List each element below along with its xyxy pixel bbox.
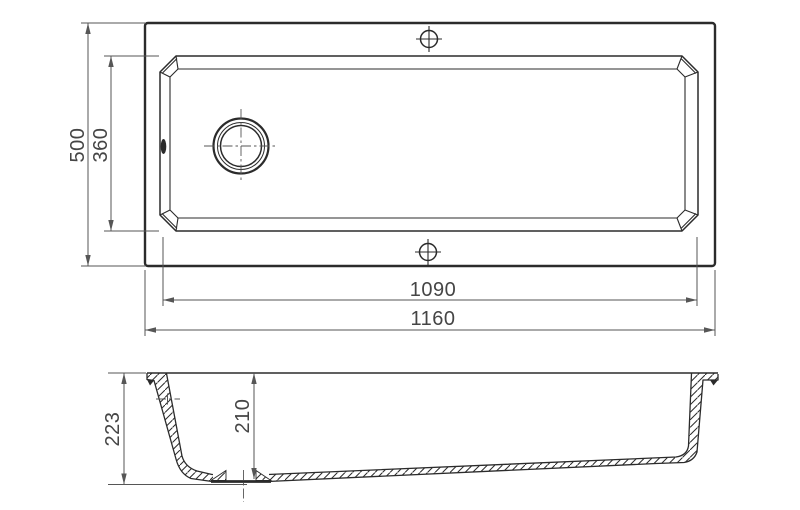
rim-slot: [161, 139, 167, 154]
sink-dimension-drawing: 500 360 1090 1160: [0, 0, 800, 510]
dim-bowl-width: 1090: [163, 237, 697, 306]
dim-360-arrow-bottom: [108, 220, 113, 231]
dim-1160-arrow-left: [145, 327, 156, 332]
dim-1160-label: 1160: [410, 308, 455, 330]
bowl-rim-outline: [160, 56, 698, 231]
dim-223-arrow-bottom: [121, 474, 126, 485]
dim-223-label: 223: [102, 412, 124, 447]
dim-360-arrow-top: [108, 56, 113, 67]
outer-outline: [145, 23, 715, 266]
dim-210-label: 210: [232, 399, 254, 434]
dim-360-label: 360: [90, 128, 112, 163]
dim-223-arrow-top: [121, 373, 126, 384]
tap-hole-bottom: [415, 239, 441, 265]
dim-bowl-depth: 360: [90, 56, 159, 231]
dim-500-arrow-top: [85, 23, 90, 34]
dim-500-label: 500: [67, 128, 89, 163]
dim-1090-arrow-right: [686, 297, 697, 302]
dim-1160-arrow-right: [704, 327, 715, 332]
tap-hole-top-cross: [416, 26, 442, 52]
top-view: 500 360 1090 1160: [67, 23, 715, 336]
dim-500-arrow-bottom: [85, 255, 90, 266]
dim-1090-arrow-left: [163, 297, 174, 302]
dim-inner-depth: 210: [232, 373, 257, 479]
technical-drawing-canvas: 500 360 1090 1160: [0, 0, 800, 510]
tap-hole-bottom-cross: [415, 239, 441, 265]
left-lip-hook: [147, 380, 154, 386]
dim-360-extension-lines: [104, 56, 159, 231]
drain: [204, 109, 278, 183]
right-lip-hook: [710, 380, 718, 386]
bowl-corner-edges: [160, 56, 698, 231]
bowl-inner-outline: [170, 69, 685, 218]
dim-210-arrow-top: [251, 373, 256, 384]
tap-hole-top: [416, 26, 442, 52]
side-section-view: 223 210: [102, 373, 718, 502]
dim-1090-label: 1090: [410, 279, 457, 301]
